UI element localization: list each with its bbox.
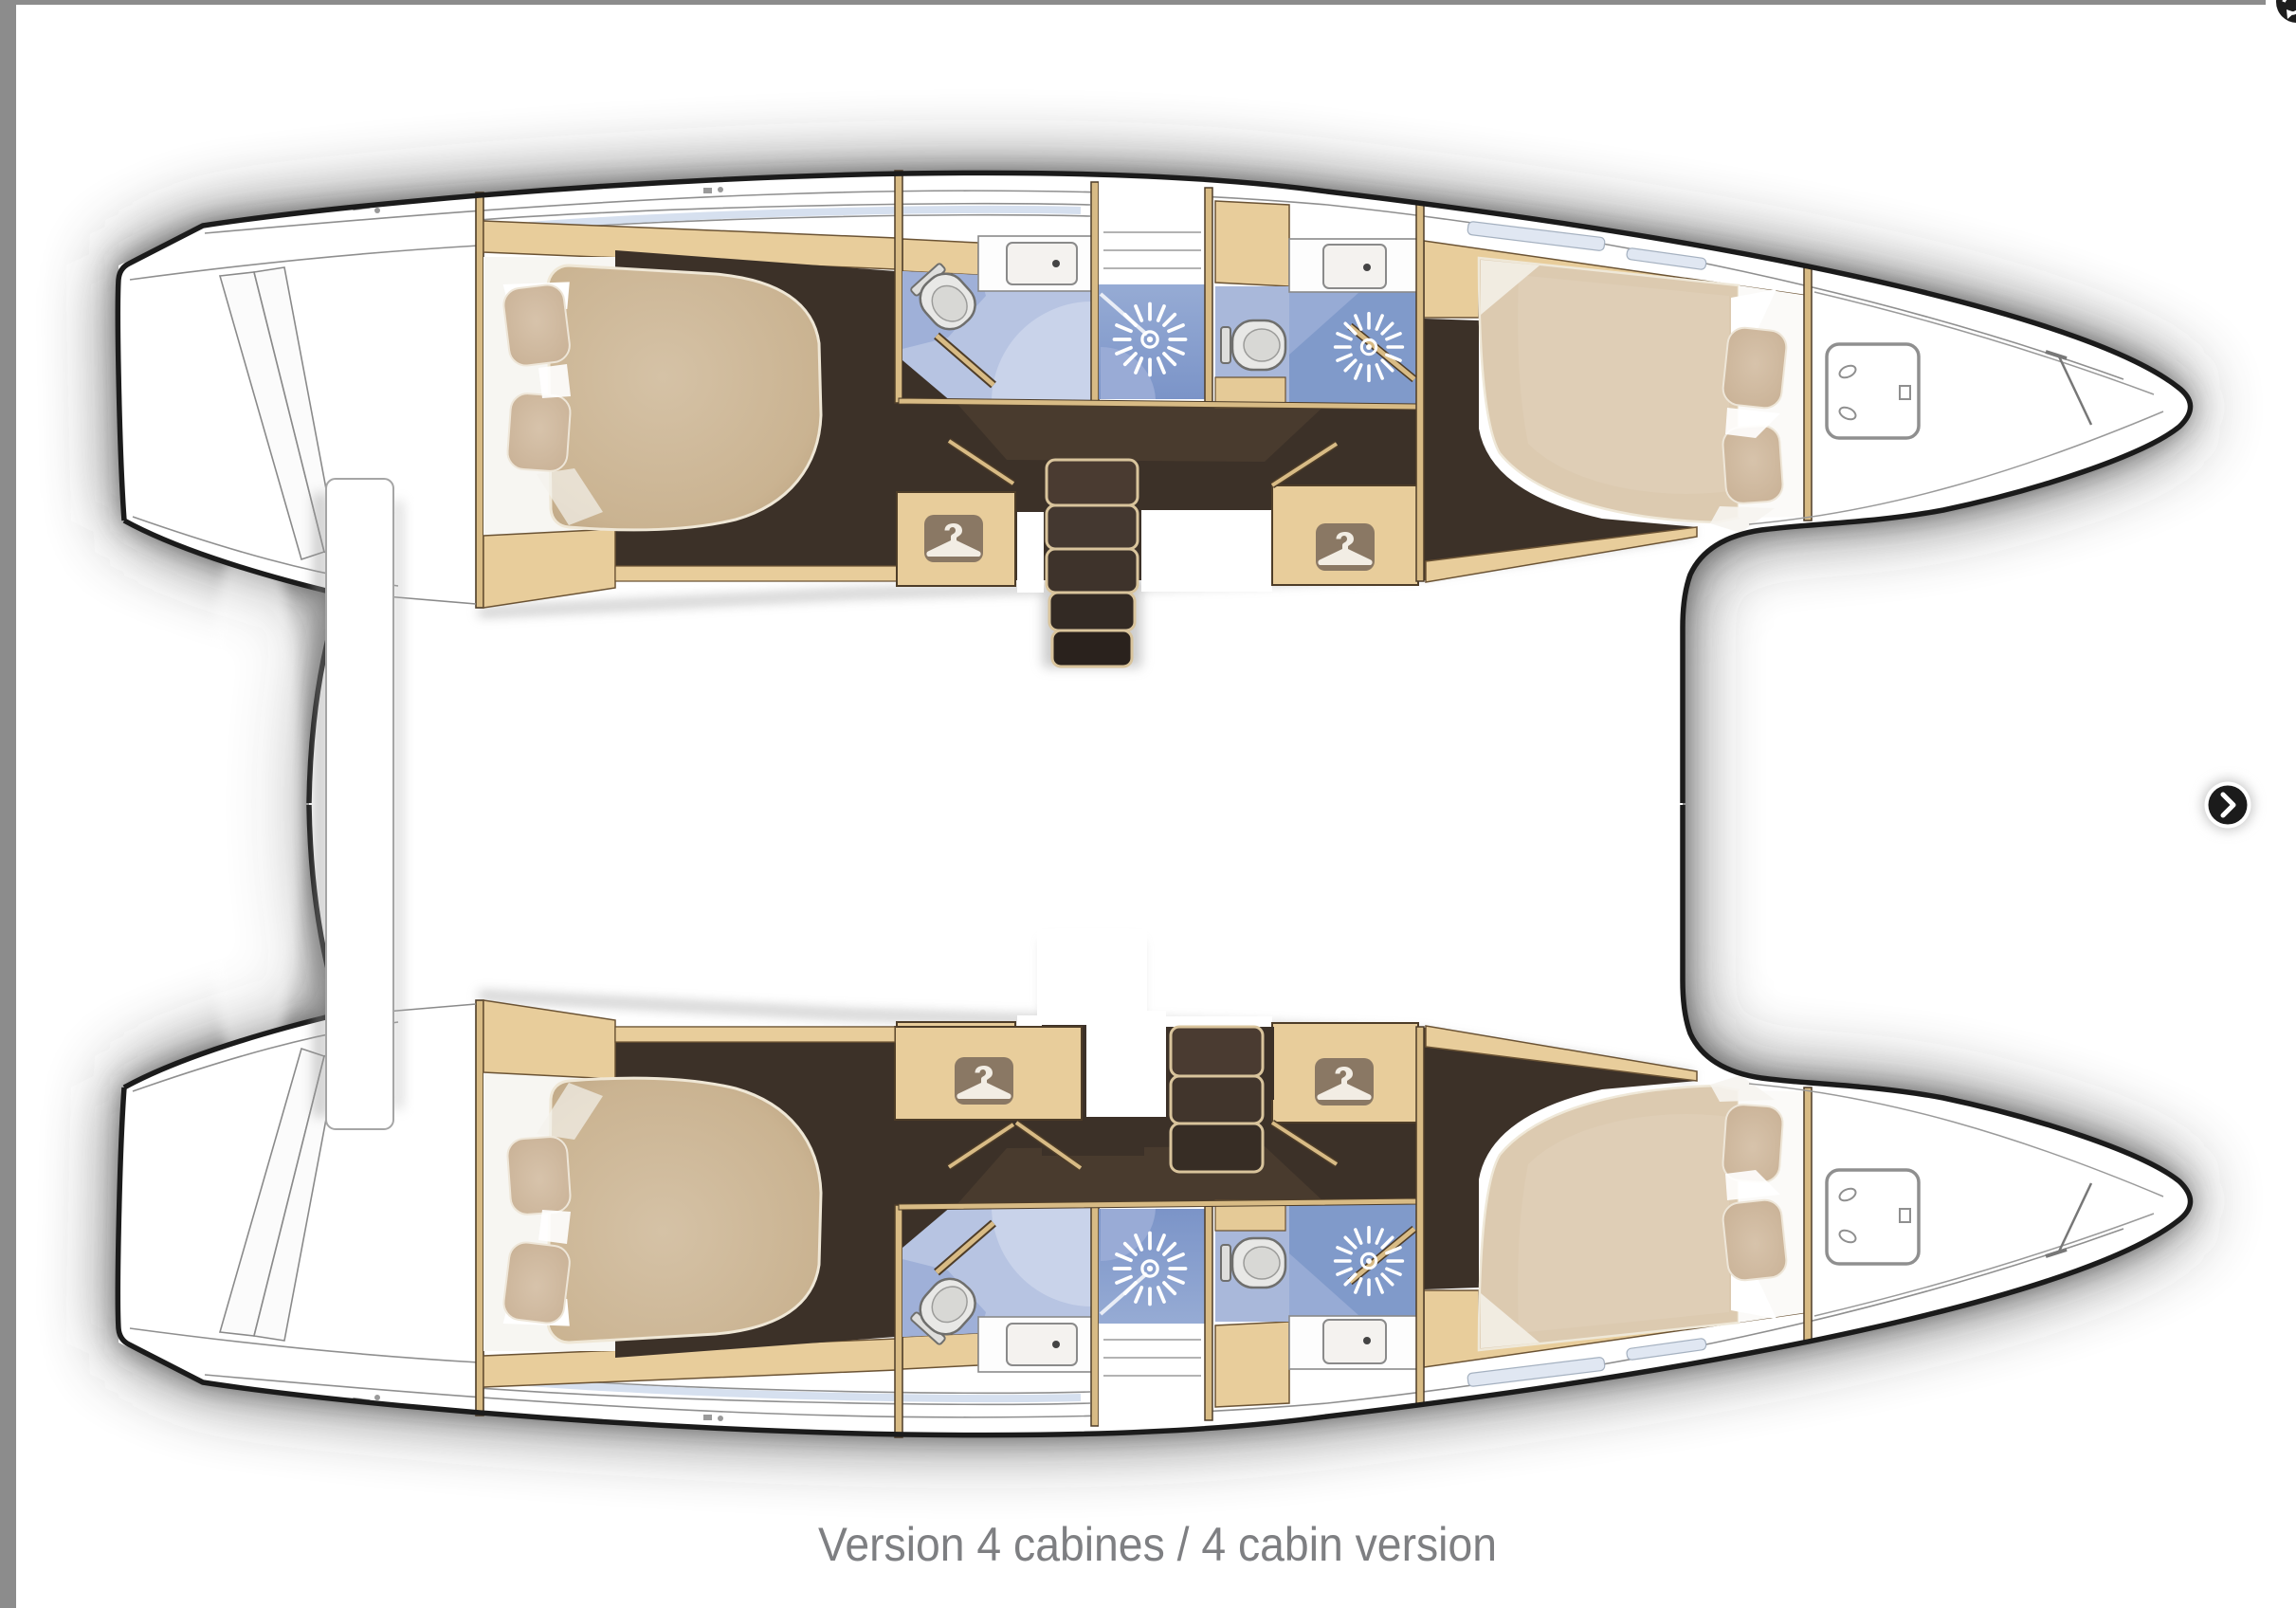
svg-text:Version 4 cabines / 4 cabin ve: Version 4 cabines / 4 cabin version (818, 1518, 1497, 1571)
